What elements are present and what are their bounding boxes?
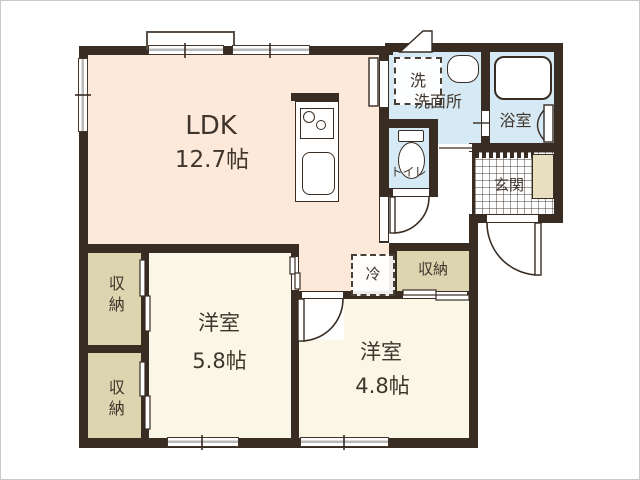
doorway-bath xyxy=(482,111,489,136)
kitchen-sink xyxy=(302,152,335,195)
stove-burner-small xyxy=(316,120,326,130)
door-swing-area xyxy=(299,299,344,340)
kitchen-counter-edge xyxy=(291,93,339,101)
closet-upper-label: 収納 xyxy=(106,275,123,317)
wall-north-right xyxy=(385,43,563,52)
slide-storage-hall xyxy=(403,292,467,298)
wall-closet-right xyxy=(141,244,149,438)
wall-toilet-right xyxy=(429,119,438,197)
front-door-arc xyxy=(487,223,539,275)
doorway-front xyxy=(487,215,538,222)
window-western1-south xyxy=(167,437,239,447)
doorway-western2 xyxy=(302,292,343,298)
ldk-area: 12.7帖 xyxy=(151,148,273,172)
bathroom-label: 浴室 xyxy=(497,113,534,130)
wall-closet-divider xyxy=(88,345,141,353)
wall-south xyxy=(79,438,478,448)
window-ldk-west xyxy=(78,58,88,132)
washing-machine-label: 洗 xyxy=(410,73,426,90)
wall-hall-storage xyxy=(389,243,478,251)
window-western2-south xyxy=(300,437,389,447)
storage-hall-label: 収納 xyxy=(414,262,452,278)
window-ldk-north-2 xyxy=(232,45,310,55)
doorway-toilet xyxy=(393,189,429,196)
wall-ldk-bottom xyxy=(79,244,299,253)
washroom-label: 洗面所 xyxy=(408,94,468,111)
wash-basin xyxy=(447,55,479,83)
room-western-1 xyxy=(149,253,291,438)
western1-label: 洋室 xyxy=(187,312,251,334)
window-ldk-north-1 xyxy=(148,45,224,55)
entrance-label: 玄関 xyxy=(492,178,526,194)
stove-burner-large xyxy=(303,111,315,123)
front-door-leaf xyxy=(535,223,541,275)
hallway-lower xyxy=(388,197,469,243)
western2-area: 4.8帖 xyxy=(345,375,420,397)
opening-ldk-washroom xyxy=(380,61,388,107)
opening-ldk-hallway xyxy=(380,197,388,241)
floor-plan: 洗 冷 xyxy=(0,0,640,480)
western1-area: 5.8帖 xyxy=(182,350,257,372)
refrigerator-label: 冷 xyxy=(365,267,380,283)
western2-label: 洋室 xyxy=(349,341,413,363)
bathtub xyxy=(494,56,552,100)
slide-washroom-hall xyxy=(438,144,472,151)
refrigerator-space: 冷 xyxy=(351,254,395,296)
toilet-label: トイレ xyxy=(388,166,429,179)
slide-western1-ldk xyxy=(292,257,298,290)
toilet-tank xyxy=(398,130,424,142)
closet-lower-label: 収納 xyxy=(106,379,123,421)
entrance-step-edge xyxy=(472,152,475,216)
wall-east-upper xyxy=(554,43,563,223)
wall-bath-bottom xyxy=(469,143,563,152)
ldk-label: LDK xyxy=(161,113,261,140)
shoe-cabinet xyxy=(532,154,554,199)
room-washroom-lower xyxy=(438,119,481,144)
entrance-step-dotted-line xyxy=(475,151,534,158)
